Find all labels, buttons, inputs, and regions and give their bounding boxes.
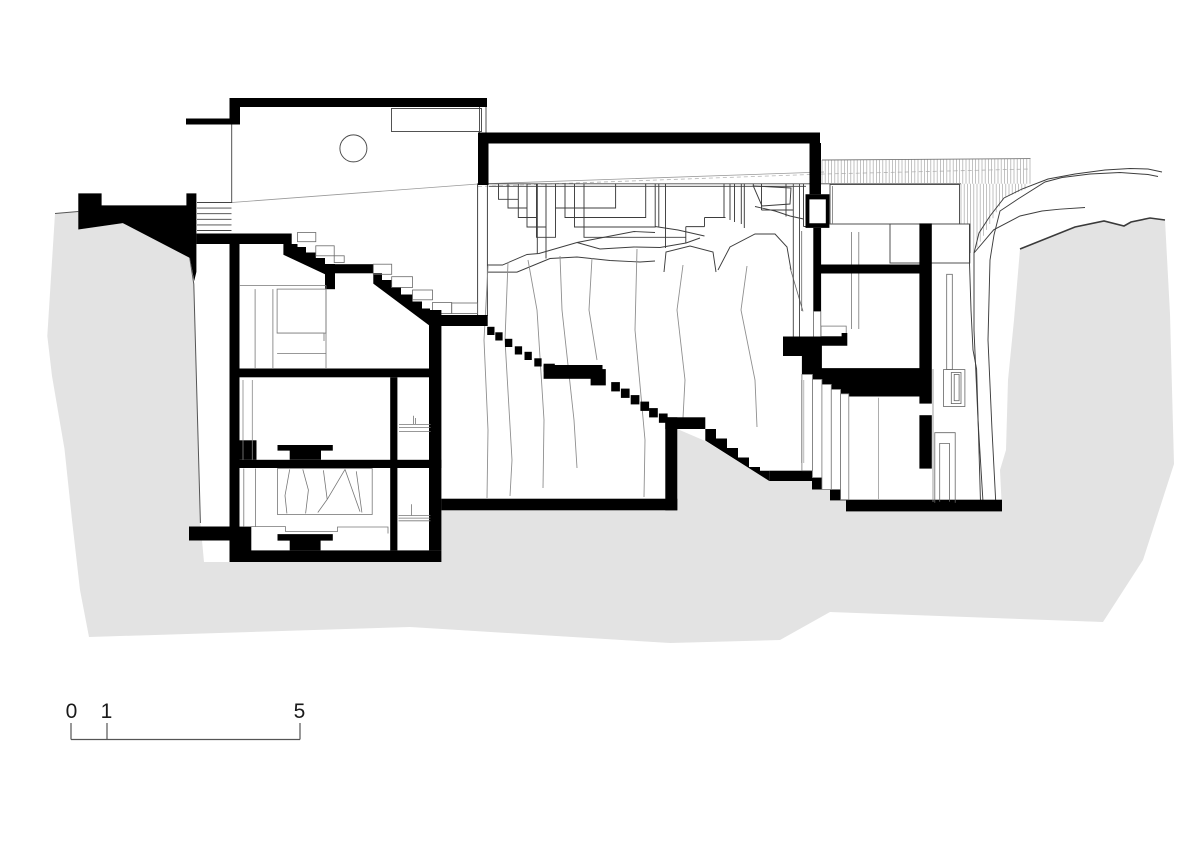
svg-text:0: 0 bbox=[66, 700, 78, 723]
svg-text:5: 5 bbox=[294, 700, 306, 723]
svg-text:1: 1 bbox=[101, 700, 113, 723]
